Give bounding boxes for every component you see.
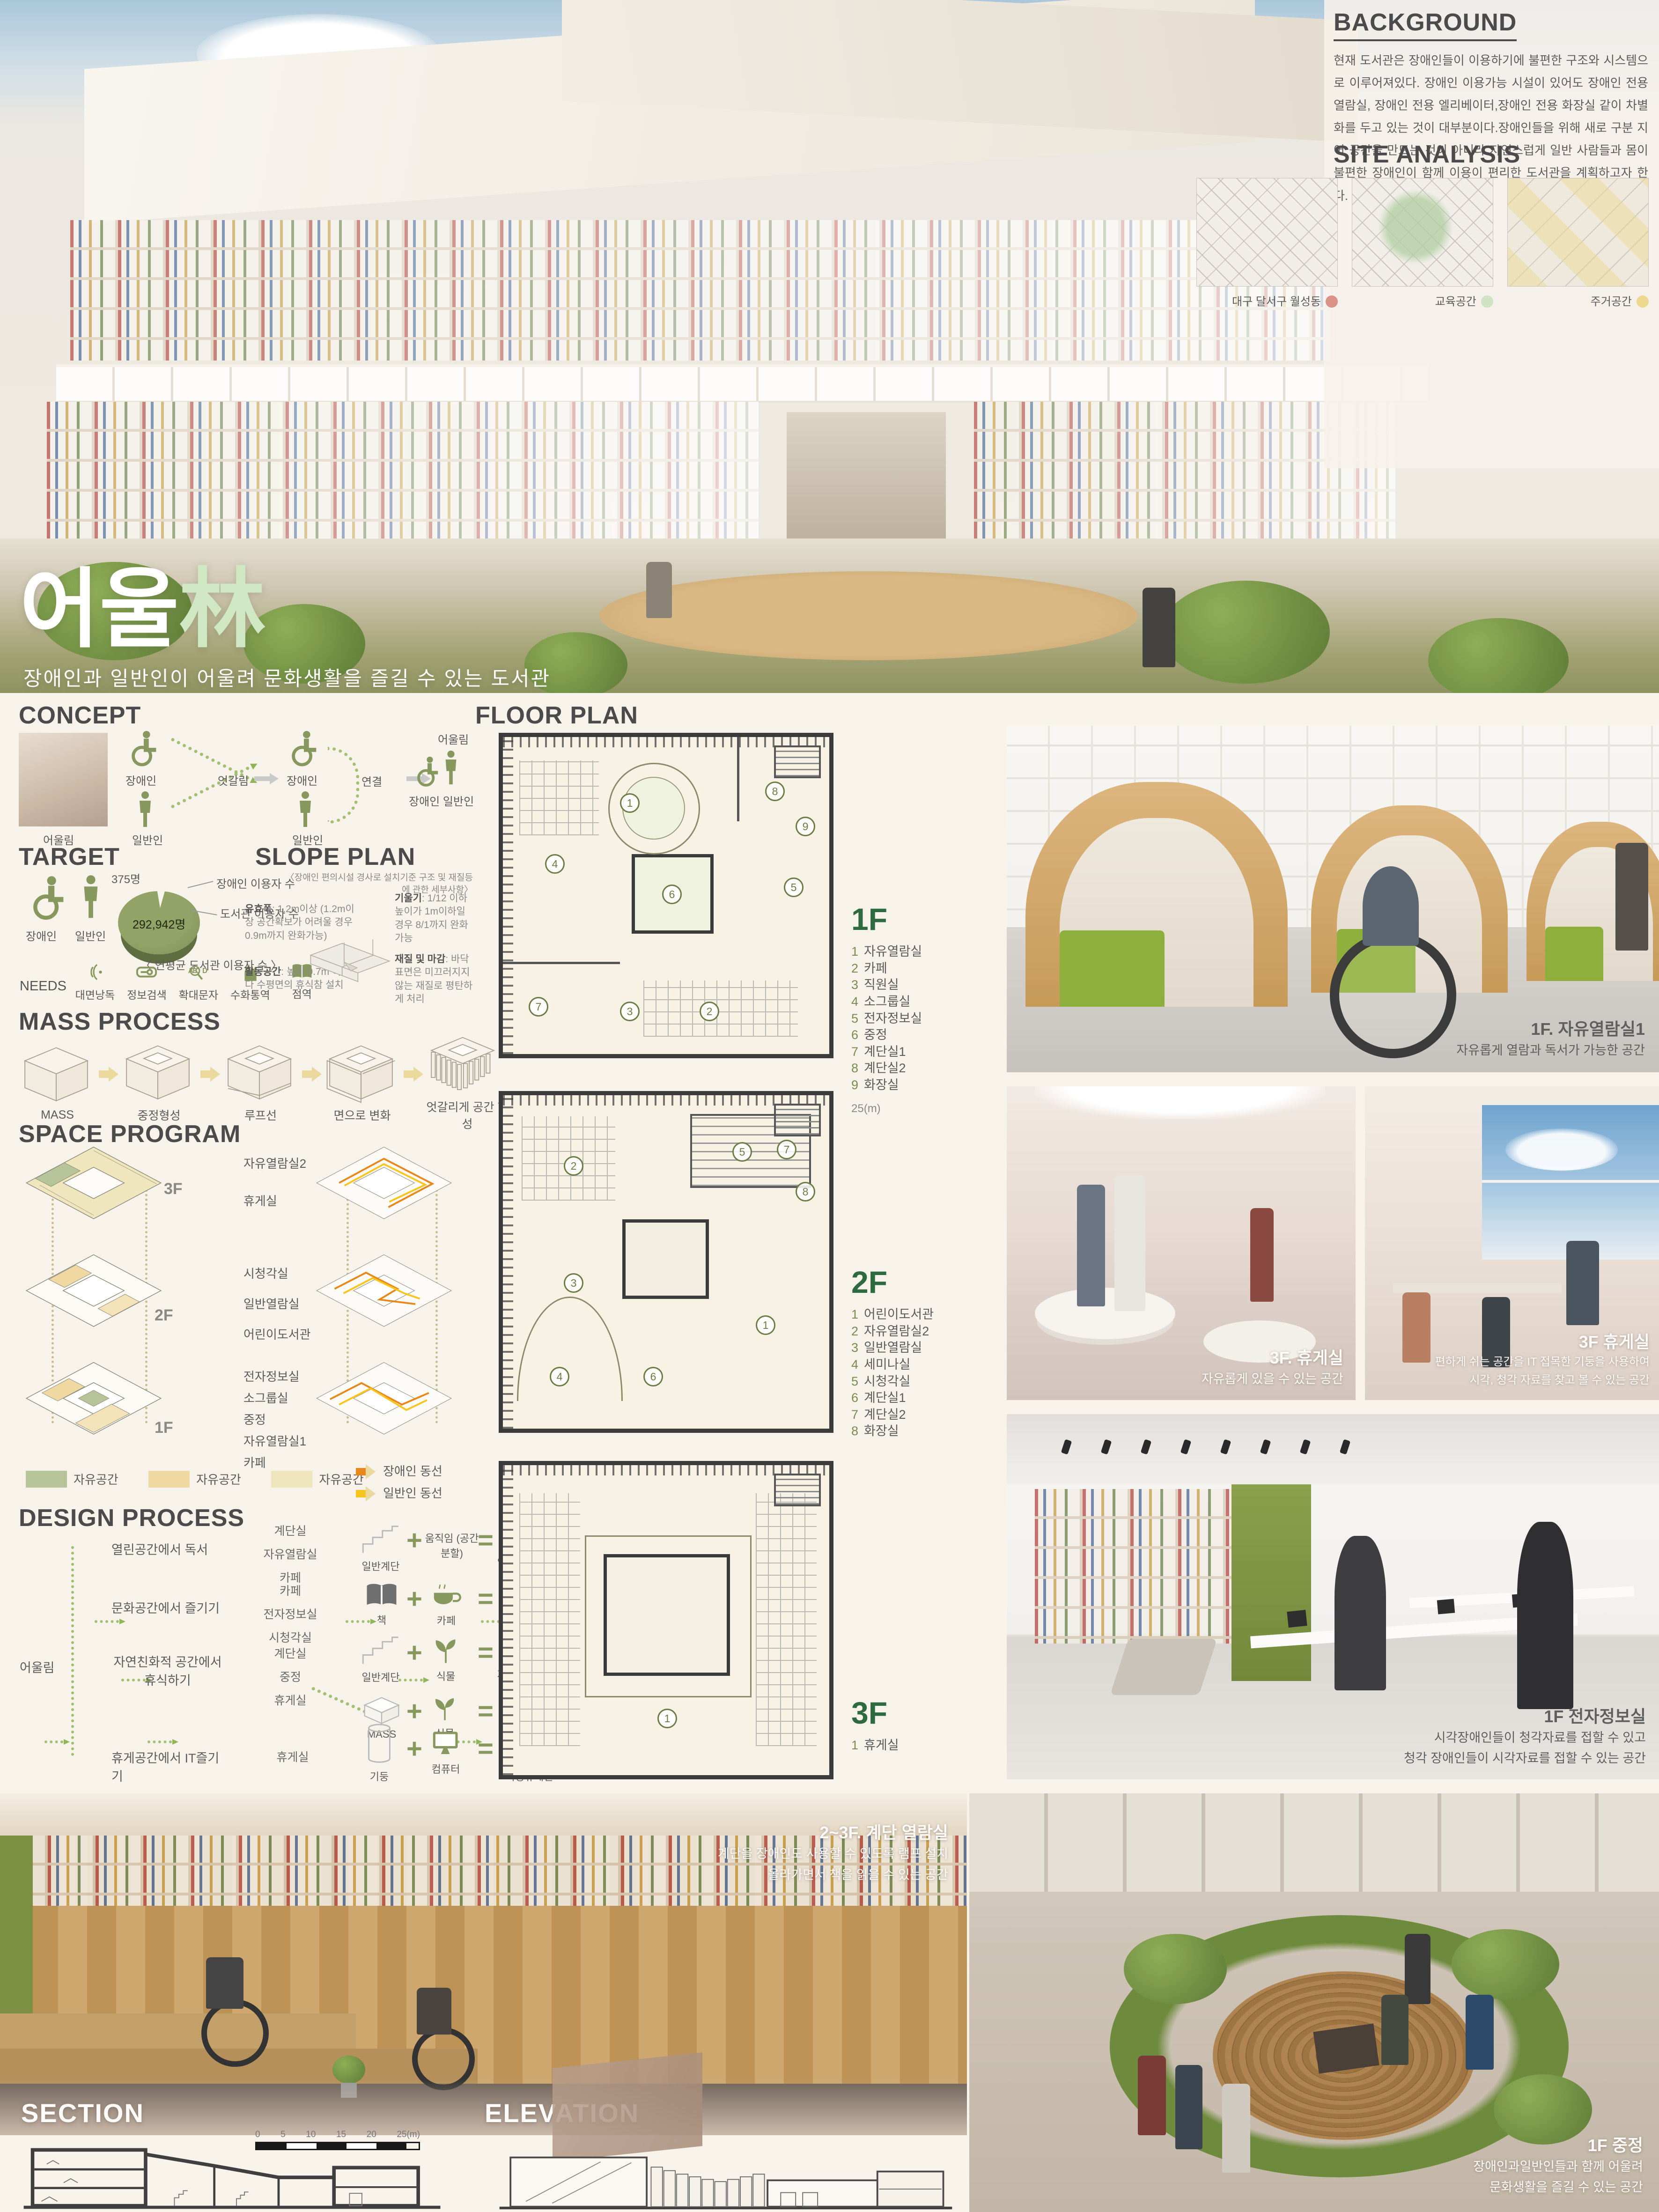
wheelchair-icon <box>286 730 322 767</box>
dotted-arrow-icon <box>147 1740 172 1743</box>
dotted-arrow-icon <box>95 1620 119 1623</box>
spotlight-track <box>1063 1440 1349 1454</box>
wheelchair-icon <box>125 730 162 767</box>
spotlight-icon <box>1300 1439 1311 1454</box>
mass-step-5: 엇갈리게 공간 형성 <box>425 1035 509 1132</box>
design-activity: 휴게공간에서 IT즐기기 <box>111 1748 229 1784</box>
wheelchair-wheel <box>1330 932 1456 1058</box>
stairs-icon: 일반계단 <box>361 1635 401 1684</box>
figure-silhouette <box>1222 2084 1250 2173</box>
caption-line: 편하게 쉬는 공간을 IT 접목한 기둥을 사용하여 <box>1435 1353 1650 1371</box>
elevation-drawing <box>485 2154 967 2211</box>
legend-swatch-orange <box>148 1471 190 1488</box>
floor-tag: 3F <box>851 1695 899 1731</box>
plan-marker: 8 <box>796 1182 815 1202</box>
design-spaces: 계단실 중정 휴게실 <box>255 1644 325 1708</box>
spotlight-icon <box>1180 1439 1192 1454</box>
figure-silhouette <box>1517 1522 1573 1709</box>
title-korean: 어울 <box>20 561 179 658</box>
figure-silhouette <box>1381 1995 1408 2065</box>
mass-cube-fins <box>425 1035 500 1096</box>
mass-cube-roofline <box>222 1043 297 1104</box>
caption-title: 3F. 휴게실 <box>1202 1344 1343 1369</box>
booth-seat <box>1545 927 1603 981</box>
plan-marker: 1 <box>620 793 640 813</box>
spotlight-icon <box>1220 1439 1231 1454</box>
caption-line: 자유롭게 있을 수 있는 공간 <box>1202 1369 1343 1390</box>
person-icon <box>136 790 155 829</box>
room-label: 소그룹실 <box>243 1389 288 1406</box>
room-label: 일반열람실 <box>243 1295 300 1312</box>
plan-marker: 1 <box>756 1315 775 1335</box>
arrow-yellow-icon <box>200 1070 211 1078</box>
bush <box>1452 1929 1559 1999</box>
cloud <box>1505 1128 1618 1171</box>
stair-core <box>774 1474 821 1506</box>
reading-booth <box>1025 782 1288 1007</box>
figure-silhouette <box>206 1957 243 2009</box>
wheelchair-icon <box>26 876 71 921</box>
need-large-text: A C D B 확대문자 <box>174 962 223 1002</box>
stairs-icon: 일반계단 <box>361 1524 401 1573</box>
map-thumbnail <box>1507 178 1649 287</box>
dotted-arrow-icon <box>44 1740 63 1743</box>
equals-sign: = <box>478 1583 494 1615</box>
entry-opening <box>787 412 946 555</box>
floor-tag-3f: 3F <box>164 1180 183 1198</box>
ceiling-light <box>1035 1086 1325 1119</box>
render-reading-room: 1F. 자유열람실1 자유롭게 열람과 독서가 가능한 공간 <box>1007 726 1659 1072</box>
bookshelf-lower-band <box>47 402 759 556</box>
figure-silhouette <box>1143 588 1175 667</box>
figure-silhouette <box>1138 2056 1166 2135</box>
floor-plan-heading: FLOOR PLAN <box>475 701 638 730</box>
arrow-right-icon <box>254 776 270 781</box>
floor-plan-3f: 1 <box>499 1461 833 1779</box>
caption-line: 자유롭게 열람과 독서가 가능한 공간 <box>1456 1040 1645 1061</box>
legend-dot-yellow <box>1637 295 1649 308</box>
title-hanja: 林 <box>179 561 265 658</box>
caption-line: 문화생활을 즐길 수 있는 공간 <box>1473 2177 1643 2198</box>
section-drawing <box>12 2145 461 2211</box>
slope-note-gradient: 기울기: 1/12 이하 높이가 1m이하일 경우 8/1까지 완화가능 <box>395 892 474 945</box>
circulation-2f-diagram <box>309 1250 459 1358</box>
stair-core <box>774 1104 821 1136</box>
design-spaces: 휴게실 <box>262 1748 323 1765</box>
reading-tables <box>643 981 798 1037</box>
site-map-location: 대구 달서구 월성동 <box>1196 178 1338 309</box>
project-subtitle: 장애인과 일반인이 어울려 문화생활을 즐길 수 있는 도서관 <box>23 663 551 692</box>
plan-marker: 5 <box>732 1142 752 1162</box>
target-heading: TARGET <box>19 843 120 871</box>
general-label: 일반인 <box>132 831 163 848</box>
room-label: 전자정보실 <box>243 1367 300 1385</box>
figure-silhouette <box>1335 1536 1386 1690</box>
design-tree-line <box>71 1546 74 1756</box>
caption-title: 1F 중정 <box>1473 2132 1643 2156</box>
map-caption: 주거공간 <box>1591 295 1632 308</box>
svg-text:B: B <box>192 967 197 975</box>
needs-label: NEEDS <box>20 979 66 994</box>
plus-sign: + <box>406 1733 422 1765</box>
caption-line: 청각 장애인들이 시각자료를 접할 수 있는 공간 <box>1404 1748 1646 1769</box>
render-lounge-b: 3F 휴게실 편하게 쉬는 공간을 IT 접목한 기둥을 사용하여 시각, 청각… <box>1365 1086 1659 1400</box>
figure-silhouette <box>1405 1934 1430 2004</box>
map-thumbnail <box>1352 178 1493 287</box>
render-caption: 3F. 휴게실 자유롭게 있을 수 있는 공간 <box>1202 1344 1343 1390</box>
background-heading: BACKGROUND <box>1334 8 1517 41</box>
wood-deck <box>599 571 1138 660</box>
circulation-1f-diagram <box>309 1358 459 1466</box>
space-floor-2f-diagram <box>19 1250 169 1358</box>
map-thumbnail <box>1196 178 1338 287</box>
mass-cube-courtyard <box>120 1043 195 1104</box>
plan-marker: 9 <box>796 817 815 836</box>
spotlight-icon <box>1101 1439 1112 1454</box>
plan-marker: 4 <box>545 854 565 874</box>
mass-process-row: MASS 중정형성 루프선 <box>19 1035 509 1132</box>
floor-tag-2f: 2F <box>155 1306 173 1325</box>
caption-line: 시각장애인들이 청각자료를 접할 수 있고 <box>1404 1727 1646 1748</box>
design-process-heading: DESIGN PROCESS <box>19 1504 244 1532</box>
plan-marker: 7 <box>529 997 548 1017</box>
elevation-backdrop <box>553 2052 702 2162</box>
spotlight-icon <box>1061 1439 1072 1454</box>
search-device-icon <box>135 962 158 982</box>
voice-icon <box>85 962 105 982</box>
link-arc-icon <box>328 747 359 824</box>
plan-marker: 7 <box>777 1140 796 1159</box>
circulation-legend: 장애인 동선 일반인 동선 <box>356 1462 442 1501</box>
column-icon: 기둥 <box>366 1722 392 1784</box>
design-root-label: 어울림 <box>20 1658 55 1676</box>
window-mullion <box>1482 1180 1659 1183</box>
disabled-label: 장애인 <box>26 927 57 944</box>
plan-marker: 6 <box>643 1367 663 1386</box>
render-caption: 1F 전자정보실 시각장애인들이 청각자료를 접할 수 있고 청각 장애인들이 … <box>1404 1703 1646 1769</box>
shelf-hatch <box>503 1465 513 1775</box>
person-icon <box>80 874 102 921</box>
project-title: 어울林 <box>20 567 265 653</box>
room-label: 중정 <box>243 1410 266 1428</box>
map-caption: 대구 달서구 월성동 <box>1232 295 1321 308</box>
lounge-chair-silhouette <box>1110 1639 1217 1695</box>
interior-wall <box>737 737 739 821</box>
floor-tag: 2F <box>851 1264 934 1300</box>
space-floor-3f-diagram <box>19 1143 169 1250</box>
magnify-text-icon: A C D B <box>187 962 210 982</box>
round-platform <box>1035 1288 1175 1339</box>
caption-title: 1F. 자유열람실1 <box>1456 1016 1645 1040</box>
site-map-education: 교육공간 <box>1352 178 1493 309</box>
mass-step-2: 중정형성 <box>120 1043 198 1123</box>
bookshelf-wall <box>1035 1489 1231 1644</box>
mass-step-1: MASS <box>19 1045 96 1122</box>
stair-core <box>774 745 821 778</box>
figure-silhouette <box>1566 1241 1599 1325</box>
floor-legend-1f: 1F 1자유열람실 2카페 3직원실 4소그룹실 5전자정보실 6중정 7계단실… <box>851 901 922 1115</box>
plan-marker: 2 <box>700 1002 719 1021</box>
room-label: 휴게실 <box>243 1192 277 1209</box>
legend-swatch-yellow <box>271 1471 312 1488</box>
figure-silhouette <box>1175 2065 1202 2149</box>
caption-title: 2~3F. 계단 열람실 <box>718 1819 948 1843</box>
render-caption: 3F 휴게실 편하게 쉬는 공간을 IT 접목한 기둥을 사용하여 시각, 청각… <box>1435 1328 1650 1390</box>
plan-marker: 3 <box>564 1273 583 1293</box>
caption-title: 1F 전자정보실 <box>1404 1703 1646 1727</box>
legend-dot-pink <box>1326 295 1338 308</box>
plant-icon: 식물 <box>431 1635 461 1683</box>
inner-corridor <box>585 1535 752 1697</box>
concept-heading: CONCEPT <box>19 701 141 730</box>
floor-plan-1f: 1 2 3 4 5 6 7 8 9 <box>499 733 833 1058</box>
figure-silhouette <box>417 1988 451 2035</box>
equals-sign: = <box>478 1695 494 1728</box>
courtyard-void <box>622 1219 709 1299</box>
coffee-icon: 카페 <box>430 1580 463 1628</box>
caption-line: 시각, 청각 자료를 찾고 볼 수 있는 공간 <box>1435 1371 1650 1390</box>
disabled-path-arrow-icon <box>356 1468 366 1475</box>
lounge-tables <box>756 1493 817 1746</box>
need-face-reading: 대면낭독 <box>70 962 120 1002</box>
figure-silhouette <box>1114 1175 1145 1311</box>
plan-marker: 6 <box>662 885 682 904</box>
floor-legend-3f: 3F 1휴게실 <box>851 1695 899 1754</box>
spotlight-icon <box>1141 1439 1152 1454</box>
dotted-arrow-icon <box>398 1679 423 1681</box>
need-label: 정보검색 <box>122 986 171 1002</box>
render-digital-room: 1F 전자정보실 시각장애인들이 청각자료를 접할 수 있고 청각 장애인들이 … <box>1007 1414 1659 1779</box>
floor-legend-2f: 2F 1어린이도서관 2자유열람실2 3일반열람실 4세미나실 5시청각실 6계… <box>851 1264 934 1440</box>
wheelchair-icon <box>412 756 443 787</box>
booth-seat <box>1060 930 1165 1007</box>
pie-small-value: 375명 <box>111 870 140 886</box>
link-label: 연결 <box>361 773 382 789</box>
equals-sign: = <box>478 1524 494 1557</box>
plus-sign: + <box>406 1695 422 1728</box>
general-label: 일반인 <box>75 927 106 944</box>
tablet <box>1437 1599 1455 1614</box>
figure-silhouette <box>1250 1208 1274 1302</box>
floor-plan-2f: 1 2 3 4 5 6 7 8 <box>499 1091 833 1433</box>
plus-sign: + <box>406 1524 422 1557</box>
arrow-yellow-icon <box>99 1070 109 1078</box>
floor-tag: 1F <box>851 901 922 937</box>
disabled-label: 장애인 <box>287 772 317 788</box>
slope-note-material: 재질 및 마감: 바닥표면은 미끄러지지 않는 재질로 평탄하게 처리 <box>395 953 474 1006</box>
disabled-label: 장애인 <box>125 772 156 788</box>
mass-cube-planes <box>324 1043 398 1104</box>
circulation-3f-diagram <box>309 1143 459 1250</box>
room-label: 자유열람실1 <box>243 1432 306 1449</box>
caption-line: 올라가면서 책을 읽을 수 있는 공간 <box>718 1865 948 1886</box>
render-lounge-a: 3F. 휴게실 자유롭게 있을 수 있는 공간 <box>1007 1086 1356 1400</box>
site-analysis-heading: SITE ANALYSIS <box>1334 140 1520 169</box>
wheelchair-wheel <box>201 1999 269 2067</box>
room-label: 자유열람실2 <box>243 1154 306 1172</box>
pie-big-value: 292,942명 <box>133 915 185 932</box>
plus-sign: + <box>406 1583 422 1615</box>
plan-scale-note: 25(m) <box>851 1102 922 1115</box>
site-map-residential: 주거공간 <box>1507 178 1649 309</box>
render-caption: 1F 중정 장애인과일반인들과 함께 어울려 문화생활을 즐길 수 있는 공간 <box>1473 2132 1643 2198</box>
plan-marker: 5 <box>784 877 804 897</box>
figure-silhouette <box>1466 1995 1494 2070</box>
plan-marker: 1 <box>657 1709 677 1728</box>
person-icon <box>442 749 460 787</box>
book-icon: 책 <box>364 1582 399 1627</box>
render-bottom-fade <box>0 2079 967 2135</box>
equals-sign: = <box>478 1733 494 1765</box>
legend-swatch-green <box>26 1471 67 1488</box>
render-courtyard: 1F 중정 장애인과일반인들과 함께 어울려 문화생활을 즐길 수 있는 공간 <box>969 1793 1659 2212</box>
ramp-diagram <box>307 925 393 997</box>
design-spaces: 계단실 자유열람실 카페 <box>255 1522 325 1585</box>
caption-line: 장애인과일반인들과 함께 어울려 <box>1473 2156 1643 2177</box>
render-caption: 1F. 자유열람실1 자유롭게 열람과 독서가 가능한 공간 <box>1456 1016 1645 1061</box>
room-label: 카페 <box>243 1453 266 1471</box>
figure-silhouette <box>1363 866 1419 946</box>
poster-board: 어울林 장애인과 일반인이 어울려 문화생활을 즐길 수 있는 도서관 BACK… <box>0 0 1659 2212</box>
interior-wall <box>503 962 620 964</box>
shelf-hatch <box>503 1095 513 1429</box>
need-info-search: 정보검색 <box>122 962 171 1002</box>
chair-silhouette <box>1402 1292 1430 1363</box>
plan-marker: 4 <box>550 1367 569 1386</box>
merge-sub-label: 장애인 일반인 <box>409 792 474 809</box>
concept-photo <box>19 733 108 826</box>
person-icon <box>296 790 315 829</box>
table <box>1393 1283 1562 1293</box>
spotlight-icon <box>1260 1439 1271 1454</box>
room-label: 시청각실 <box>243 1264 288 1282</box>
bookshelf-upper-band <box>70 220 1335 361</box>
design-activity: 자연친화적 공간에서 휴식하기 <box>111 1652 224 1688</box>
leader-line <box>188 881 214 888</box>
section-heading: SECTION <box>21 2098 144 2128</box>
hero-render: 어울林 장애인과 일반인이 어울려 문화생활을 즐길 수 있는 도서관 BACK… <box>0 0 1659 693</box>
legend-dot-green <box>1481 295 1493 308</box>
room-label: 어린이도서관 <box>243 1325 311 1342</box>
bush <box>1161 581 1330 684</box>
gallery-railing <box>56 364 1428 403</box>
green-accent-wall <box>1231 1484 1311 1681</box>
interior-band <box>969 1793 1659 1892</box>
design-activity: 열린공간에서 독서 <box>111 1540 224 1558</box>
merge-label: 어울림 <box>438 730 469 747</box>
mass-cube <box>19 1045 94 1106</box>
reading-tables <box>519 760 599 835</box>
caption-title: 3F 휴게실 <box>1435 1328 1650 1353</box>
center-bench <box>1313 2023 1379 2073</box>
figure-silhouette <box>1615 843 1648 951</box>
need-label: 대면낭독 <box>70 986 120 1002</box>
lounge-tables <box>519 1493 580 1746</box>
design-b-text: 움직임 (공간 분할) <box>424 1530 480 1560</box>
general-path-arrow-icon <box>356 1490 366 1497</box>
floor-tag-1f: 1F <box>155 1419 173 1437</box>
bush <box>1124 1934 1227 2004</box>
plan-marker: 8 <box>765 782 785 801</box>
mass-process-heading: MASS PROCESS <box>19 1008 221 1036</box>
caption-line: 계단을 장애인도 사용할 수 있도록 램프 설치 <box>718 1843 948 1865</box>
equals-sign: = <box>478 1637 494 1669</box>
render-caption: 2~3F. 계단 열람실 계단을 장애인도 사용할 수 있도록 램프 설치 올라… <box>718 1819 948 1885</box>
map-caption: 교육공간 <box>1435 295 1476 308</box>
plan-marker: 3 <box>620 1002 640 1021</box>
figure-silhouette <box>1077 1185 1105 1306</box>
plan-marker: 2 <box>564 1156 583 1176</box>
cross-label: 엇갈림 <box>218 772 249 788</box>
arrow-yellow-icon <box>404 1070 414 1078</box>
space-legend: 자유공간 자유공간 자유공간 <box>26 1470 364 1488</box>
need-label: 확대문자 <box>174 986 223 1002</box>
shelf-hatch <box>503 737 513 1054</box>
mass-step-4: 면으로 변화 <box>324 1043 401 1123</box>
curved-shelf <box>517 1297 623 1401</box>
design-spaces: 카페 전자정보실 시청각실 <box>255 1582 325 1645</box>
site-maps: 대구 달서구 월성동 교육공간 주거공간 <box>1196 178 1649 309</box>
figure-silhouette <box>646 562 672 618</box>
computer-icon: 컴퓨터 <box>430 1729 462 1776</box>
slope-plan-heading: SLOPE PLAN <box>255 843 415 871</box>
space-floor-1f-diagram <box>19 1358 169 1466</box>
arrow-yellow-icon <box>302 1070 312 1078</box>
design-activity: 문화공간에서 즐기기 <box>111 1598 224 1616</box>
plus-sign: + <box>406 1637 422 1669</box>
render-stair-reading: 2~3F. 계단 열람실 계단을 장애인도 사용할 수 있도록 램프 설치 올라… <box>0 1793 967 2135</box>
tablet <box>1287 1610 1307 1628</box>
mass-step-3: 루프선 <box>222 1043 299 1123</box>
